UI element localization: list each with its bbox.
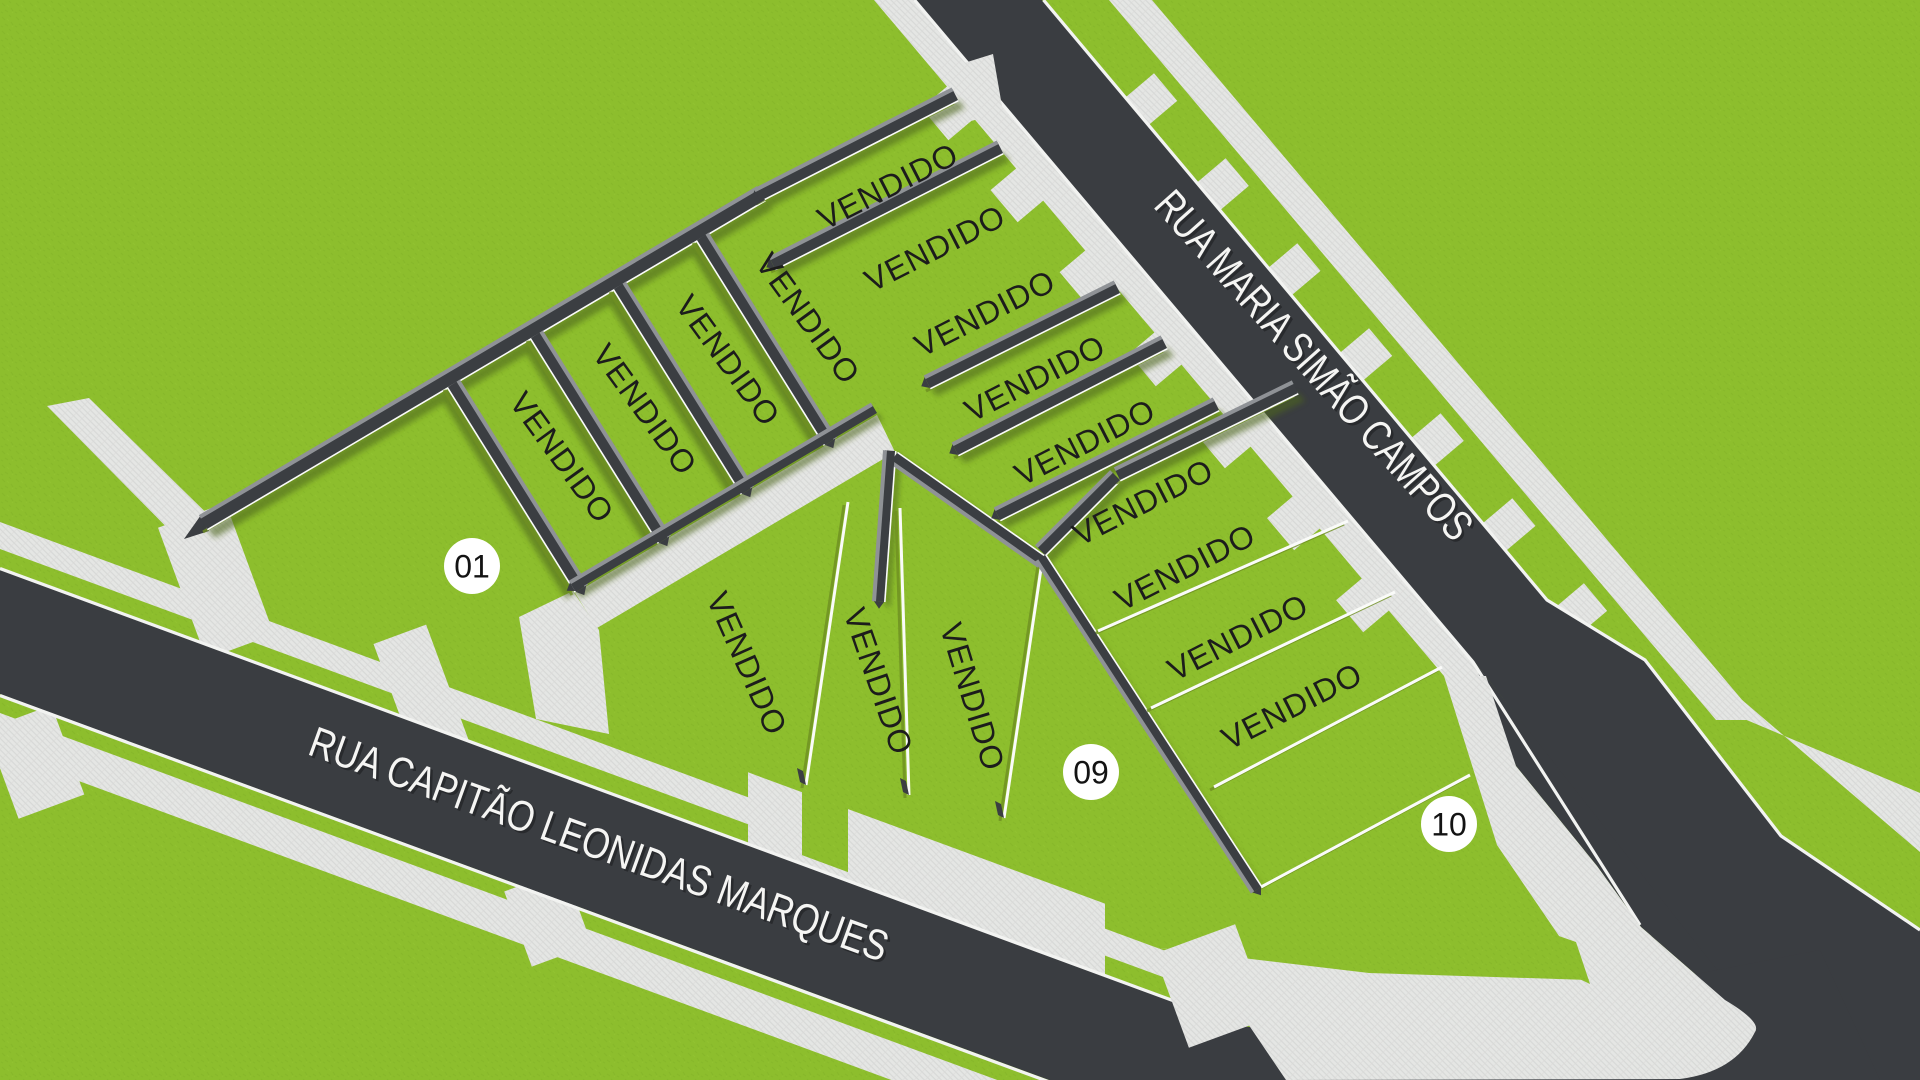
svg-text:10: 10 xyxy=(1431,807,1467,843)
svg-text:09: 09 xyxy=(1073,755,1109,791)
svg-text:01: 01 xyxy=(454,549,490,585)
